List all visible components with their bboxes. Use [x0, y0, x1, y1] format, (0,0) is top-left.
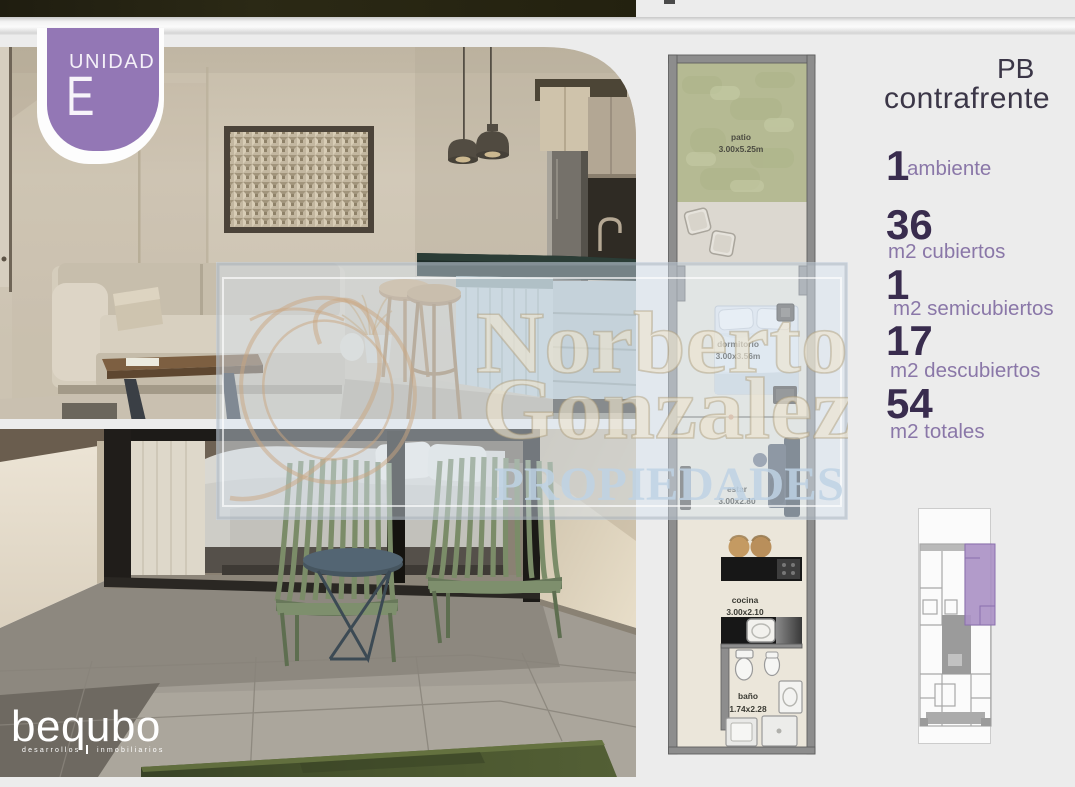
svg-text:baño: baño	[738, 691, 758, 701]
svg-text:3.00x5.25m: 3.00x5.25m	[719, 144, 764, 154]
svg-text:cocina: cocina	[732, 595, 759, 605]
svg-text:3.00x2.10: 3.00x2.10	[726, 607, 764, 617]
svg-text:PROPIEDADES: PROPIEDADES	[494, 458, 844, 511]
svg-text:Gonzalez: Gonzalez	[482, 361, 848, 458]
svg-text:1.74x2.28: 1.74x2.28	[729, 704, 767, 714]
svg-text:patio: patio	[731, 132, 751, 142]
